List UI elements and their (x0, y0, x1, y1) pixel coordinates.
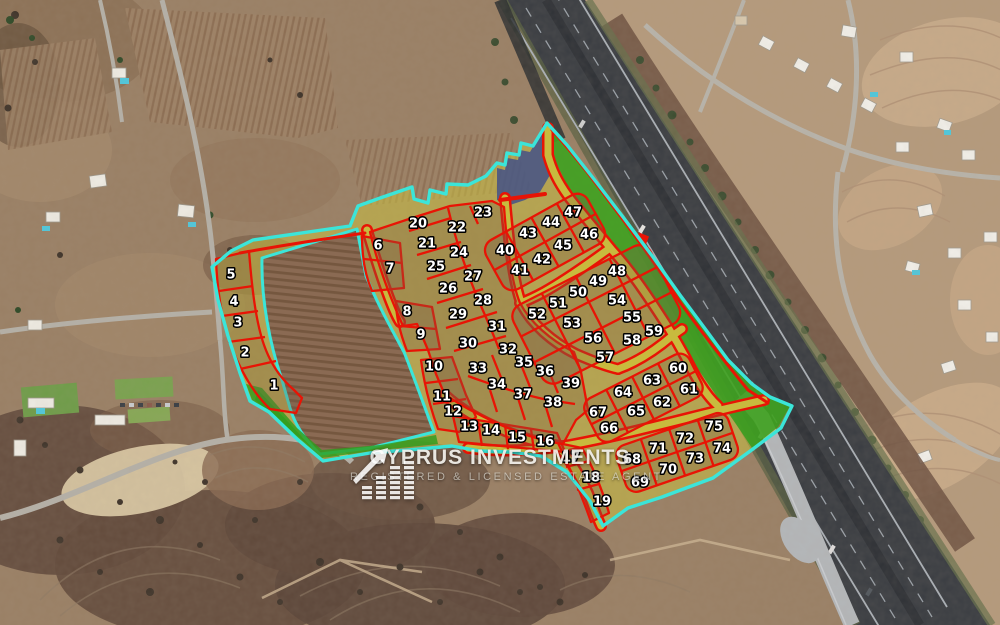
plot-number-62: 62 (653, 396, 671, 411)
plot-number-63: 63 (643, 374, 661, 389)
plot-number-24: 24 (450, 246, 468, 261)
plot-number-60: 60 (669, 362, 687, 377)
plot-number-74: 74 (713, 442, 731, 457)
plot-number-42: 42 (533, 253, 551, 268)
plot-number-11: 11 (433, 390, 451, 405)
plot-number-69: 69 (631, 476, 649, 491)
screenshot-root: 1234567891011121314151617181920212223242… (0, 0, 1000, 625)
plot-number-38: 38 (544, 396, 562, 411)
plot-number-59: 59 (645, 325, 663, 340)
plot-number-43: 43 (519, 227, 537, 242)
plot-number-58: 58 (623, 334, 641, 349)
plot-number-65: 65 (627, 405, 645, 420)
plot-number-15: 15 (508, 431, 526, 446)
plot-number-67: 67 (589, 406, 607, 421)
plot-number-40: 40 (496, 244, 514, 259)
plot-number-26: 26 (439, 282, 457, 297)
plot-number-35: 35 (515, 356, 533, 371)
plot-number-66: 66 (600, 422, 618, 437)
plot-number-33: 33 (469, 362, 487, 377)
plot-number-41: 41 (511, 264, 529, 279)
plot-number-7: 7 (385, 262, 394, 277)
plot-number-48: 48 (608, 265, 626, 280)
plot-number-9: 9 (416, 328, 425, 343)
plot-number-49: 49 (589, 275, 607, 290)
plot-number-53: 53 (563, 317, 581, 332)
plot-number-13: 13 (460, 420, 478, 435)
plot-number-52: 52 (528, 308, 546, 323)
plot-number-72: 72 (676, 432, 694, 447)
plot-number-39: 39 (562, 377, 580, 392)
plot-number-22: 22 (448, 221, 466, 236)
plot-overlay: 1234567891011121314151617181920212223242… (0, 0, 1000, 625)
plot-number-61: 61 (680, 383, 698, 398)
plot-number-29: 29 (449, 308, 467, 323)
plot-number-28: 28 (474, 294, 492, 309)
plot-number-14: 14 (482, 424, 500, 439)
plot-number-44: 44 (542, 216, 560, 231)
plot-number-27: 27 (464, 270, 482, 285)
plot-number-71: 71 (649, 442, 667, 457)
plot-number-70: 70 (659, 463, 677, 478)
plot-number-50: 50 (569, 286, 587, 301)
plot-number-75: 75 (705, 420, 723, 435)
plot-number-51: 51 (549, 297, 567, 312)
plot-number-47: 47 (564, 206, 582, 221)
plot-number-3: 3 (233, 316, 242, 331)
plot-number-8: 8 (402, 305, 411, 320)
plot-number-56: 56 (584, 332, 602, 347)
plot-number-18: 18 (582, 471, 600, 486)
plot-number-6: 6 (373, 239, 382, 254)
plot-number-46: 46 (580, 228, 598, 243)
plot-number-55: 55 (623, 311, 641, 326)
plot-number-31: 31 (488, 320, 506, 335)
plot-number-19: 19 (593, 495, 611, 510)
plot-number-68: 68 (623, 453, 641, 468)
plot-number-4: 4 (229, 295, 238, 310)
plot-number-12: 12 (444, 405, 462, 420)
plot-number-37: 37 (514, 388, 532, 403)
plot-number-34: 34 (488, 378, 506, 393)
plot-number-23: 23 (474, 206, 492, 221)
plot-number-21: 21 (418, 237, 436, 252)
plot-number-54: 54 (608, 294, 626, 309)
plot-number-57: 57 (596, 351, 614, 366)
plot-number-73: 73 (686, 452, 704, 467)
plot-number-25: 25 (427, 260, 445, 275)
plot-number-5: 5 (226, 268, 235, 283)
plot-number-64: 64 (614, 386, 632, 401)
plot-number-17: 17 (562, 451, 580, 466)
plot-number-30: 30 (459, 337, 477, 352)
plot-number-16: 16 (536, 435, 554, 450)
plot-number-10: 10 (425, 360, 443, 375)
plot-number-45: 45 (554, 239, 572, 254)
plot-number-36: 36 (536, 365, 554, 380)
plot-number-1: 1 (269, 379, 278, 394)
plot-number-20: 20 (409, 217, 427, 232)
plot-number-2: 2 (240, 346, 249, 361)
